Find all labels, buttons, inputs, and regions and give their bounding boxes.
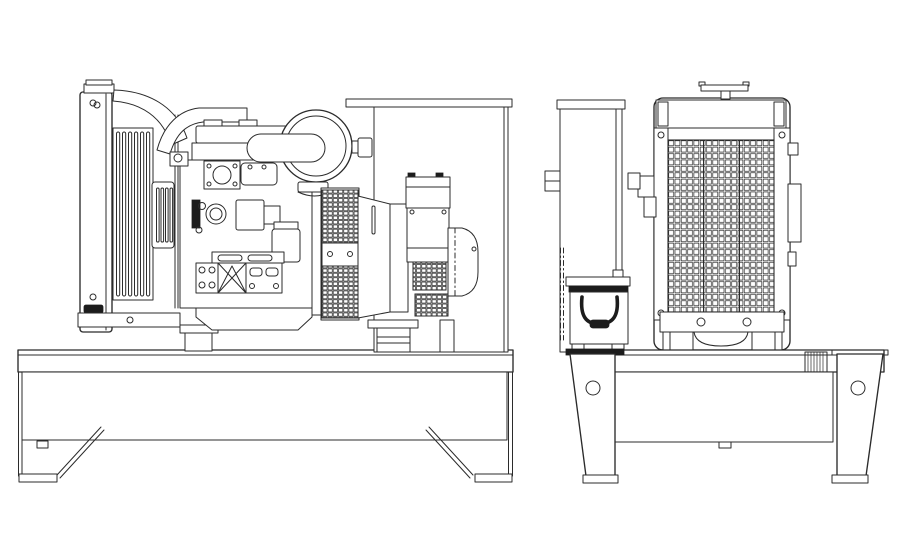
side-view [18,80,513,482]
skid-foot [832,475,868,483]
radiator-filler-cap [86,80,112,85]
battery [566,270,630,350]
terminal-box [407,208,449,262]
radiator-mounting-foot [752,332,782,351]
skid-foot [475,474,512,482]
alternator-vent-grille [413,262,446,290]
alternator-vent-grille [322,190,358,243]
generator-two-view-drawing: Two-view technical line drawing of an op… [0,0,900,550]
front-engine-mount [196,263,218,293]
base-skid-end [566,349,888,483]
side-bracket-left [654,128,668,320]
battery-body [570,292,628,344]
back-plate-lid [346,99,512,107]
pipe-fitting [628,173,640,189]
alternator-pedestal [377,328,410,352]
base-skid-side [18,350,513,482]
skid-leg-right [832,350,888,483]
radiator-filler-cap [699,82,749,99]
skid-side-panel [22,372,507,440]
radiator-drain-cock [84,305,103,313]
non-drive-end-cover [448,228,478,296]
battery-clamp-frame [566,277,630,286]
skid-leg-with-lifting-hole [570,354,615,476]
skid-rail [18,350,513,372]
alternator-vent-grille [415,294,448,316]
right-side-box [788,184,801,242]
alternator-vent-grille [322,266,358,318]
overflow-louvre-panel [152,182,174,248]
skid-leg-with-lifting-hole [837,354,883,476]
air-cleaner-outlet [358,138,372,157]
radiator-bottom-tank [660,312,784,332]
skid-foot [583,475,618,483]
starter-motor [236,200,264,230]
alternator-rear-frame [390,204,408,312]
radiator-grille [668,140,774,312]
skid-foot [19,474,57,482]
end-view [545,82,888,483]
radiator-end [628,82,801,351]
right-tab [788,143,798,155]
fuel-injection-pump [206,204,226,224]
terminal-box-lid [406,177,450,187]
skid-leg-left [566,349,624,483]
intake-manifold [241,163,277,185]
front-pedestal [185,333,212,351]
radiator-support-bracket [78,313,180,327]
radiator-top-tank [656,100,786,128]
rear-support-bracket [440,320,454,352]
air-intake-horn [247,134,325,162]
alternator-drum [358,196,390,318]
radiator-mounting-foot [663,332,693,351]
skid-end-panel [615,372,833,442]
pedestal-cap [557,100,625,109]
exhaust-manifold-flange [204,161,240,189]
oil-pan [196,308,312,330]
